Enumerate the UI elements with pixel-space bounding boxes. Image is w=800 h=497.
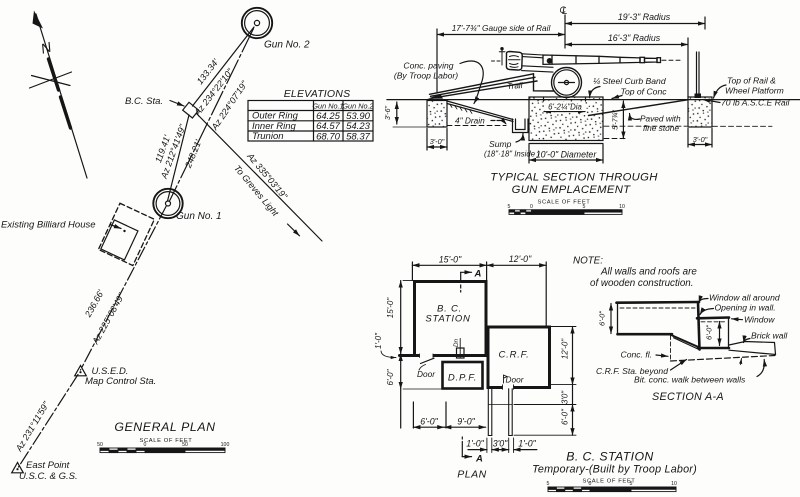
svg-text:C.R.F.: C.R.F. <box>498 350 529 361</box>
svg-text:5: 5 <box>547 481 550 487</box>
svg-text:ELEVATIONS: ELEVATIONS <box>284 88 351 100</box>
svg-text:1'-0": 1'-0" <box>518 439 536 449</box>
svg-text:Wheel Platform: Wheel Platform <box>725 86 784 96</box>
svg-text:Temporary-(Built by Troop Labo: Temporary-(Built by Troop Labor) <box>532 464 697 476</box>
svg-text:10: 10 <box>619 204 625 210</box>
svg-text:Map Control Sta.: Map Control Sta. <box>85 376 156 387</box>
svg-text:GENERAL PLAN: GENERAL PLAN <box>114 420 215 434</box>
svg-text:NOTE:: NOTE: <box>573 256 603 267</box>
svg-text:Conc. fl.: Conc. fl. <box>621 350 653 360</box>
svg-text:50: 50 <box>182 442 188 448</box>
svg-text:D.P.F.: D.P.F. <box>448 373 477 384</box>
svg-text:3'0": 3'0" <box>561 390 570 404</box>
svg-text:Window all around: Window all around <box>709 293 780 303</box>
svg-text:6'-2¼"Dia: 6'-2¼"Dia <box>548 103 582 112</box>
svg-text:3'-0": 3'-0" <box>693 135 708 144</box>
svg-text:4" Drain: 4" Drain <box>455 116 485 126</box>
svg-text:100: 100 <box>221 442 230 448</box>
svg-text:Sump: Sump <box>489 139 512 149</box>
svg-text:(By Troop Labor): (By Troop Labor) <box>394 71 458 81</box>
svg-text:Trunion: Trunion <box>252 131 284 142</box>
svg-text:Brick wall: Brick wall <box>751 331 788 341</box>
svg-text:70 lb A.S.C.E Rail: 70 lb A.S.C.E Rail <box>721 98 791 108</box>
svg-text:0: 0 <box>144 442 147 448</box>
svg-text:0: 0 <box>530 204 533 210</box>
svg-text:Door: Door <box>506 375 525 385</box>
svg-text:236.66': 236.66' <box>82 288 106 320</box>
svg-text:50: 50 <box>97 442 103 448</box>
svg-text:5'-7¾": 5'-7¾" <box>613 110 620 130</box>
svg-text:Paved with: Paved with <box>640 114 681 124</box>
svg-text:Gun No. 2: Gun No. 2 <box>264 40 310 51</box>
svg-text:Opening in wall.: Opening in wall. <box>715 303 776 313</box>
svg-text:3'0": 3'0" <box>493 439 508 449</box>
svg-text:Dn: Dn <box>453 338 460 347</box>
svg-text:Az 231°11'59": Az 231°11'59" <box>13 399 51 454</box>
svg-text:3'-6": 3'-6" <box>385 106 392 120</box>
svg-text:6'-0": 6'-0" <box>386 368 395 385</box>
svg-text:5: 5 <box>508 204 511 210</box>
svg-text:16'-3" Radius: 16'-3" Radius <box>608 33 661 43</box>
svg-text:SECTION A-A: SECTION A-A <box>652 391 724 403</box>
svg-text:GUN EMPLACEMENT: GUN EMPLACEMENT <box>512 184 632 196</box>
svg-text:5: 5 <box>630 481 633 487</box>
svg-text:15'-0": 15'-0" <box>386 297 395 319</box>
svg-text:6'-0": 6'-0" <box>598 311 607 326</box>
svg-text:All walls and roofs are: All walls and roofs are <box>600 267 697 278</box>
svg-text:East Point: East Point <box>26 460 70 471</box>
svg-text:6'-0": 6'-0" <box>705 325 714 340</box>
svg-text:Gun No.2: Gun No.2 <box>342 102 373 111</box>
svg-text:U.S.C. & G.S.: U.S.C. & G.S. <box>19 471 78 482</box>
svg-text:A: A <box>475 454 483 465</box>
svg-text:¼ Steel Curb Band: ¼ Steel Curb Band <box>593 76 666 86</box>
svg-text:68.70: 68.70 <box>316 131 340 142</box>
svg-text:N: N <box>39 38 54 56</box>
svg-text:5: 5 <box>583 204 586 210</box>
svg-text:19'-3" Radius: 19'-3" Radius <box>618 12 671 22</box>
svg-text:0: 0 <box>589 481 592 487</box>
svg-text:6'-0": 6'-0" <box>561 408 570 425</box>
svg-text:Trail: Trail <box>507 80 524 91</box>
svg-text:Gun No.1: Gun No.1 <box>312 102 343 111</box>
svg-text:248.21': 248.21' <box>183 138 204 170</box>
svg-text:17'-7¾" Gauge side of Rail: 17'-7¾" Gauge side of Rail <box>452 23 552 33</box>
svg-text:10'-0" Diameter: 10'-0" Diameter <box>536 150 598 160</box>
svg-text:STATION: STATION <box>425 314 470 325</box>
svg-text:Conc. paving: Conc. paving <box>403 61 453 71</box>
svg-text:B.C. Sta.: B.C. Sta. <box>125 96 163 107</box>
svg-text:B. C. STATION: B. C. STATION <box>566 450 653 464</box>
svg-text:(18"·18" Inside ): (18"·18" Inside ) <box>484 150 540 159</box>
svg-text:Existing Billiard House: Existing Billiard House <box>1 220 96 231</box>
svg-text:15'-0": 15'-0" <box>439 255 462 265</box>
svg-text:6'-0": 6'-0" <box>420 417 438 427</box>
svg-text:58.37: 58.37 <box>346 131 370 142</box>
svg-text:Door: Door <box>417 369 436 379</box>
svg-text:3'-0": 3'-0" <box>430 137 445 146</box>
svg-text:PLAN: PLAN <box>457 469 486 481</box>
svg-text:Window: Window <box>744 315 775 325</box>
svg-text:12'-0": 12'-0" <box>509 254 532 264</box>
svg-text:Gun No. 1: Gun No. 1 <box>176 211 222 222</box>
svg-text:of wooden construction.: of wooden construction. <box>590 278 693 289</box>
svg-text:1'-0": 1'-0" <box>466 439 484 449</box>
svg-text:Bit. conc. walk between walls: Bit. conc. walk between walls <box>634 375 746 385</box>
svg-text:A: A <box>474 269 482 280</box>
svg-text:Top of Rail &: Top of Rail & <box>727 76 776 86</box>
svg-text:12'-0": 12'-0" <box>561 338 570 360</box>
svg-text:Top of Conc: Top of Conc <box>621 87 668 97</box>
svg-text:fine stone: fine stone <box>643 123 679 133</box>
svg-text:9'-0": 9'-0" <box>457 417 475 427</box>
svg-text:1'-0": 1'-0" <box>374 332 383 349</box>
svg-text:TYPICAL SECTION THROUGH: TYPICAL SECTION THROUGH <box>490 172 658 184</box>
svg-text:10: 10 <box>671 481 677 487</box>
